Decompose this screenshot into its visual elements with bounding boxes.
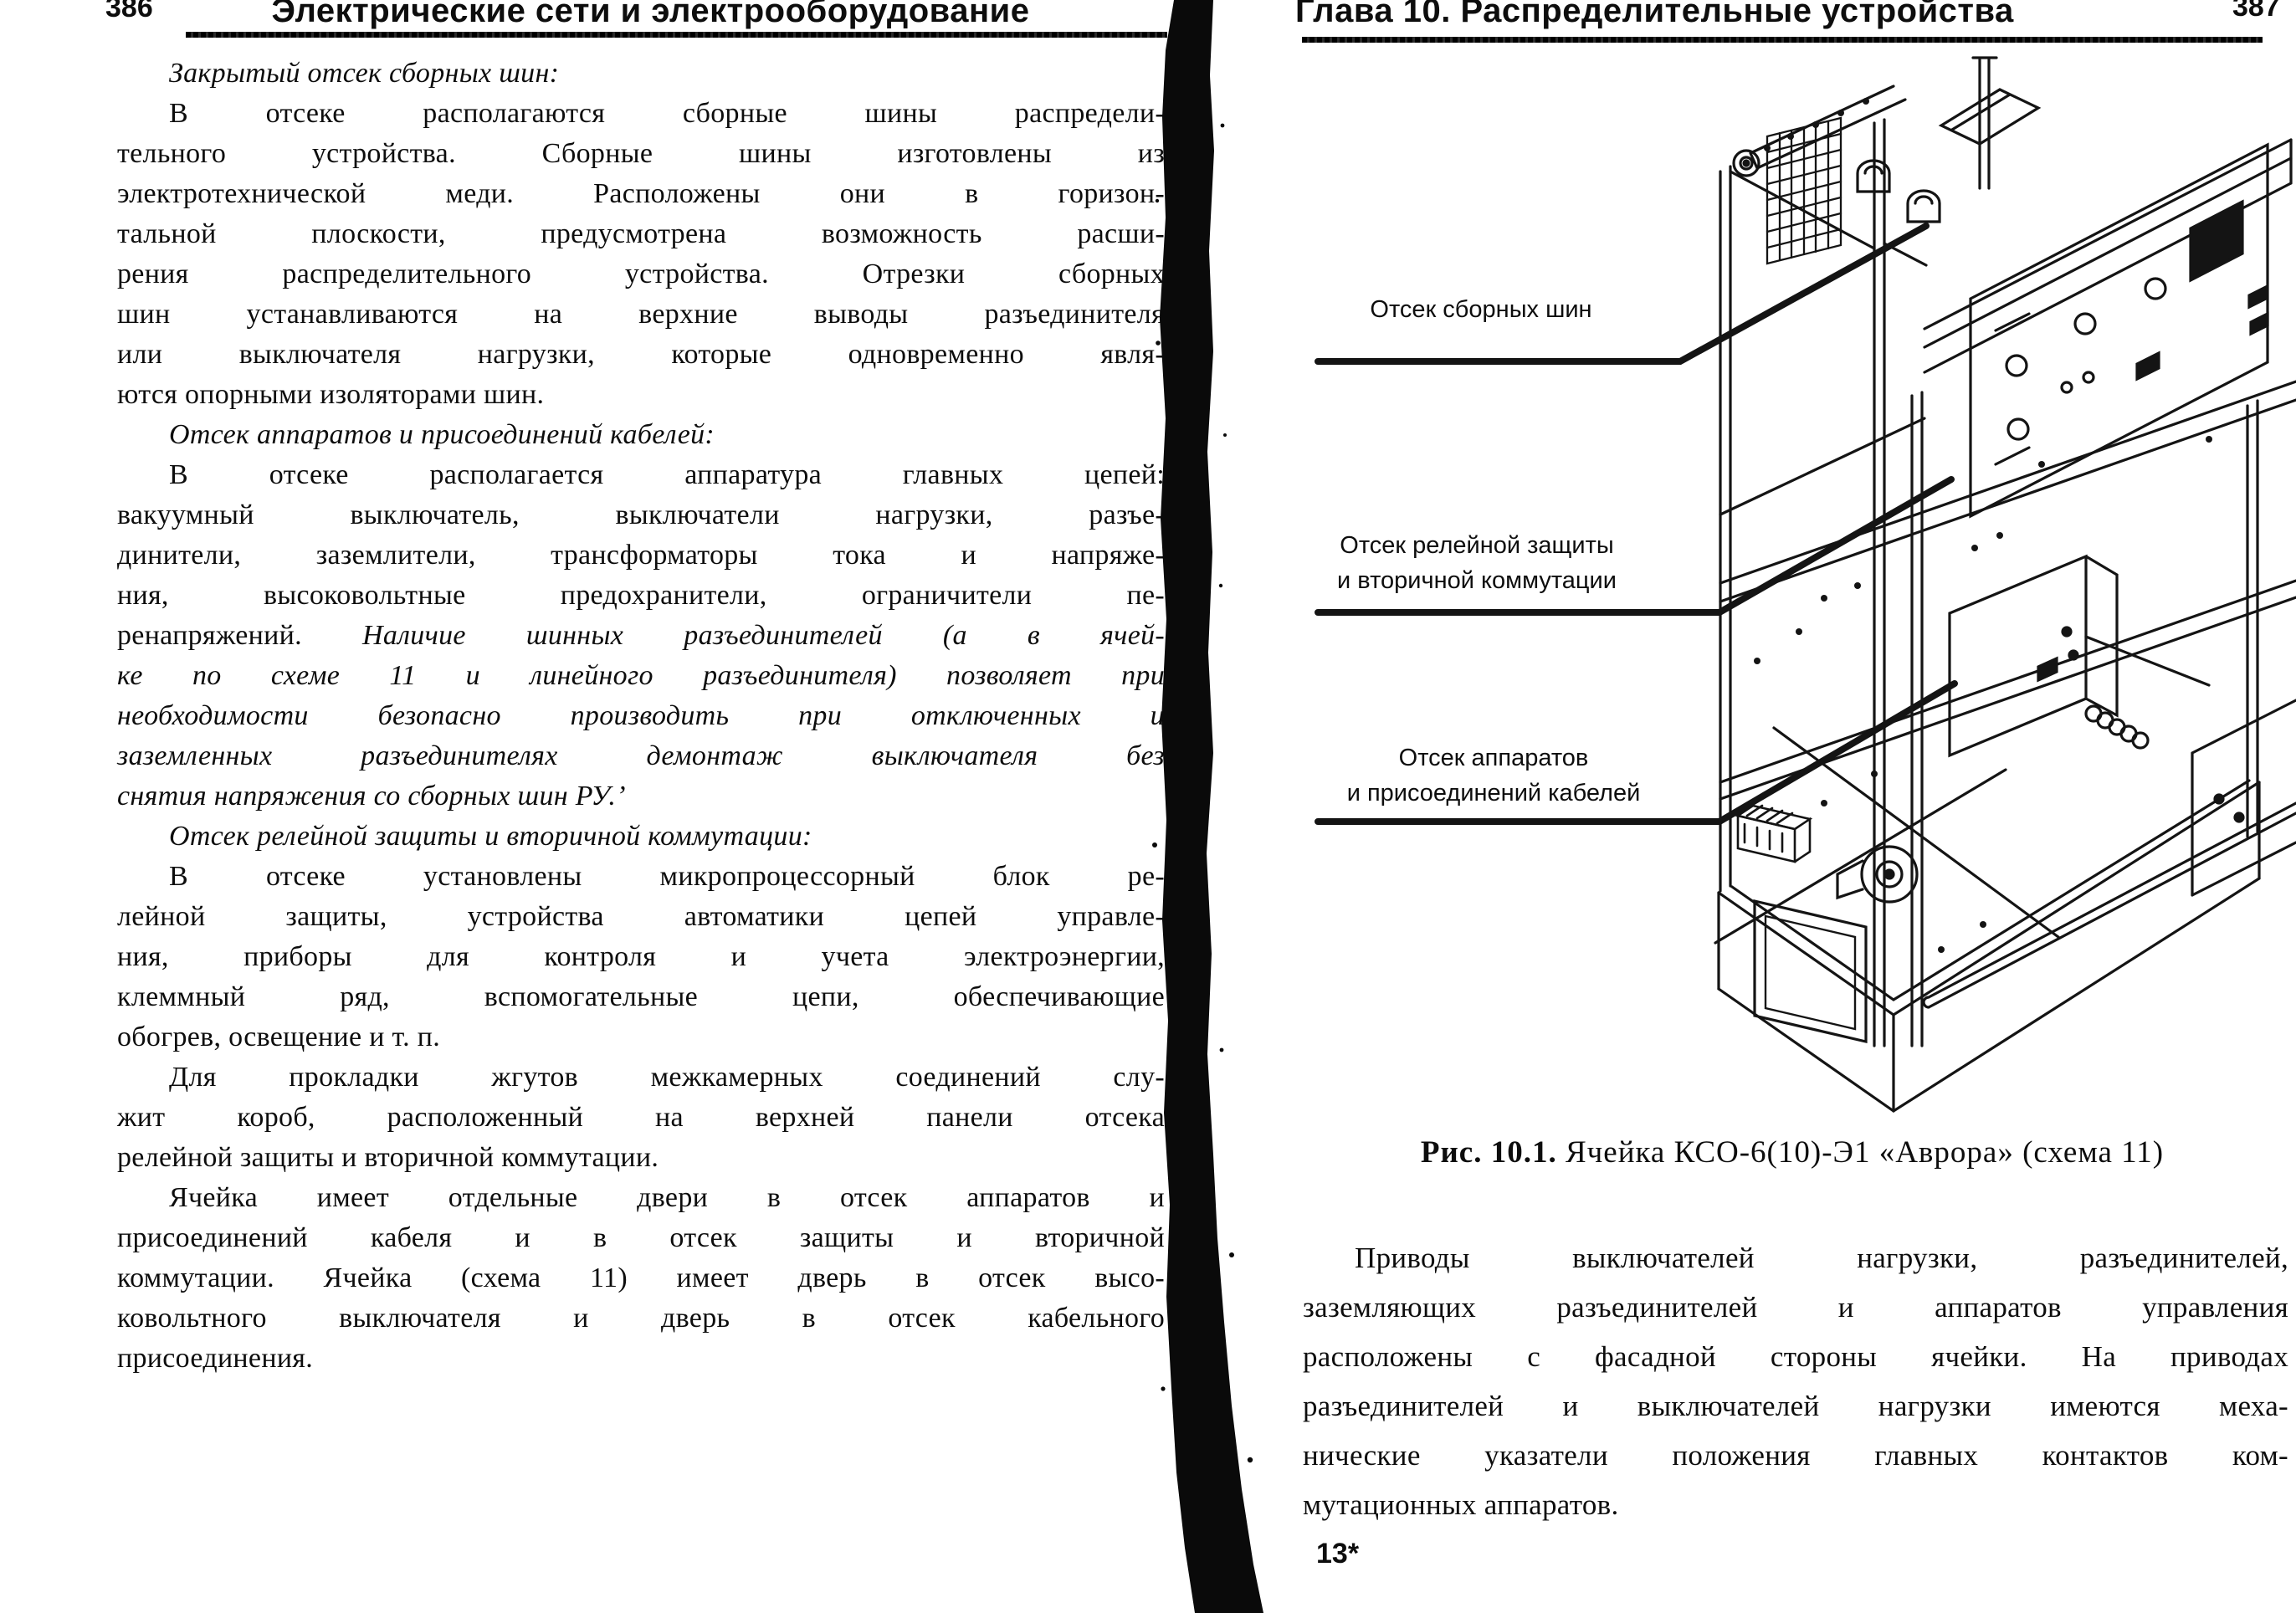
text-line: ренапряжений. Наличие шинных разъедините… xyxy=(117,616,1165,656)
text-line: Для прокладки жгутов межкамерных соедине… xyxy=(117,1057,1165,1098)
left-header-rule xyxy=(186,32,1167,38)
italic-text-segment: необходимости безопасно производить при … xyxy=(117,700,1165,731)
text-segment: Приводы выключателей нагрузки, разъедини… xyxy=(1355,1242,2288,1274)
text-line: Отсек аппаратов и присоединений кабелей: xyxy=(117,415,1165,455)
italic-text-segment: Закрытый отсек сборных шин: xyxy=(169,58,559,89)
busbar-insulators xyxy=(1858,161,1940,222)
text-segment: вакуумный выключатель, выключатели нагру… xyxy=(117,499,1165,530)
label-line: Отсек релейной защиты xyxy=(1305,528,1648,563)
text-segment: релейной защиты и вторичной коммутации. xyxy=(117,1142,659,1173)
text-line: заземленных разъединителях демонтаж выкл… xyxy=(117,736,1165,776)
text-line: ковольтного выключателя и дверь в отсек … xyxy=(117,1298,1165,1339)
italic-text-segment: Отсек аппаратов и присоединений кабелей: xyxy=(169,419,715,450)
left-text-column: Закрытый отсек сборных шин:В отсеке расп… xyxy=(117,54,1165,1379)
text-line: клеммный ряд, вспомогательные цепи, обес… xyxy=(117,977,1165,1017)
figure-10-1-diagram: Отсек сборных шин Отсек релейной защиты … xyxy=(1289,46,2296,1125)
text-segment: лейной защиты, устройства автоматики цеп… xyxy=(117,901,1165,932)
text-segment: присоединения. xyxy=(117,1343,313,1374)
text-segment: клеммный ряд, вспомогательные цепи, обес… xyxy=(117,981,1165,1012)
text-segment: В отсеке установлены микропроцессорный б… xyxy=(169,861,1165,892)
text-segment: ния, приборы для контроля и учета электр… xyxy=(117,941,1165,972)
label-line: и присоединений кабелей xyxy=(1326,776,1661,811)
text-segment: шин устанавливаются на верхние выводы ра… xyxy=(117,299,1165,330)
label-apparatus-compartment: Отсек аппаратов и присоединений кабелей xyxy=(1326,740,1661,811)
relay-instrument-panel xyxy=(1971,145,2268,516)
text-line: Приводы выключателей нагрузки, разъедини… xyxy=(1303,1233,2288,1283)
signature-mark: 13* xyxy=(1316,1538,1359,1570)
figure-caption-text: Ячейка КСО-6(10)-Э1 «Аврора» (схема 11) xyxy=(1557,1135,2164,1170)
text-segment: обогрев, освещение и т. п. xyxy=(117,1022,440,1052)
text-line: динители, заземлители, трансформаторы то… xyxy=(117,535,1165,576)
text-segment: рения распределительного устройства. Отр… xyxy=(117,259,1165,289)
text-segment: динители, заземлители, трансформаторы то… xyxy=(117,540,1165,571)
italic-text-segment: снятия напряжения со сборных шин РУ.’ xyxy=(117,781,626,812)
bolt-dots xyxy=(1754,436,2212,953)
text-line: В отсеке располагаются сборные шины расп… xyxy=(117,94,1165,134)
text-line: ния, приборы для контроля и учета электр… xyxy=(117,937,1165,977)
lower-door-panel xyxy=(1755,901,1866,1042)
right-running-head: Глава 10. Распределительные устройства xyxy=(1295,0,2014,30)
text-segment: разъединителей и выключателей нагрузки и… xyxy=(1303,1390,2288,1422)
right-header-rule xyxy=(1302,37,2263,43)
text-line: ния, высоковольтные предохранители, огра… xyxy=(117,576,1165,616)
text-line: шин устанавливаются на верхние выводы ра… xyxy=(117,294,1165,335)
text-segment: жит короб, расположенный на верхней пане… xyxy=(117,1102,1165,1133)
text-line: разъединителей и выключателей нагрузки и… xyxy=(1303,1381,2288,1431)
text-line: присоединений кабеля и в отсек защиты и … xyxy=(117,1218,1165,1258)
text-line: В отсеке установлены микропроцессорный б… xyxy=(117,857,1165,897)
text-line: В отсеке располагается аппаратура главны… xyxy=(117,455,1165,495)
text-line: снятия напряжения со сборных шин РУ.’ xyxy=(117,776,1165,817)
text-line: заземляющих разъединителей и аппаратов у… xyxy=(1303,1283,2288,1332)
text-segment: коммутации. Ячейка (схема 11) имеет двер… xyxy=(117,1262,1165,1293)
text-line: тальной плоскости, предусмотрена возможн… xyxy=(117,214,1165,254)
text-segment: В отсеке располагается аппаратура главны… xyxy=(169,459,1165,490)
text-line: лейной защиты, устройства автоматики цеп… xyxy=(117,897,1165,937)
text-line: Закрытый отсек сборных шин: xyxy=(117,54,1165,94)
text-line: коммутации. Ячейка (схема 11) имеет двер… xyxy=(117,1258,1165,1298)
text-line: Отсек релейной защиты и вторичной коммут… xyxy=(117,817,1165,857)
text-line: обогрев, освещение и т. п. xyxy=(117,1017,1165,1057)
text-line: расположены с фасадной стороны ячейки. Н… xyxy=(1303,1332,2288,1381)
text-line: нические указатели положения главных кон… xyxy=(1303,1431,2288,1480)
text-segment: ренапряжений. xyxy=(117,620,362,651)
text-line: релейной защиты и вторичной коммутации. xyxy=(117,1138,1165,1178)
text-segment: мутационных аппаратов. xyxy=(1303,1488,1619,1521)
base-plinth xyxy=(1719,781,2259,1111)
text-segment: ются опорными изоляторами шин. xyxy=(117,379,544,410)
text-line: необходимости безопасно производить при … xyxy=(117,696,1165,736)
text-line: рения распределительного устройства. Отр… xyxy=(117,254,1165,294)
text-line: ке по схеме 11 и линейного разъединителя… xyxy=(117,656,1165,696)
book-scan-page: { "colors": { "ink": "#0d0d0d", "paper":… xyxy=(0,0,2296,1613)
bottom-rail xyxy=(1924,803,2296,1007)
text-line: электротехнической меди. Расположены они… xyxy=(117,174,1165,214)
text-line: или выключателя нагрузки, которые одновр… xyxy=(117,335,1165,375)
label-line: Отсек аппаратов xyxy=(1326,740,1661,776)
label-relay-compartment: Отсек релейной защиты и вторичной коммут… xyxy=(1305,528,1648,598)
text-segment: Для прокладки жгутов межкамерных соедине… xyxy=(169,1062,1165,1093)
figure-caption-number: Рис. 10.1. xyxy=(1421,1135,1557,1170)
text-line: присоединения. xyxy=(117,1339,1165,1379)
text-segment: тальной плоскости, предусмотрена возможн… xyxy=(117,218,1165,249)
text-segment: или выключателя нагрузки, которые одновр… xyxy=(117,339,1165,370)
right-lower-panel xyxy=(2192,700,2296,895)
text-line: жит короб, расположенный на верхней пане… xyxy=(117,1098,1165,1138)
text-segment: нические указатели положения главных кон… xyxy=(1303,1439,2288,1472)
fan-scroll xyxy=(1837,847,1917,902)
italic-text-segment: Наличие шинных разъединителей (а в ячей- xyxy=(362,620,1165,651)
text-segment: ковольтного выключателя и дверь в отсек … xyxy=(117,1303,1165,1334)
label-busbar-compartment: Отсек сборных шин xyxy=(1314,292,1648,327)
text-segment: В отсеке располагаются сборные шины расп… xyxy=(169,98,1165,129)
text-segment: Ячейка имеет отдельные двери в отсек апп… xyxy=(169,1182,1165,1213)
text-segment: заземляющих разъединителей и аппаратов у… xyxy=(1303,1291,2288,1324)
italic-text-segment: Отсек релейной защиты и вторичной коммут… xyxy=(169,821,812,852)
text-line: мутационных аппаратов. xyxy=(1303,1480,2288,1529)
left-running-head: Электрические сети и электрооборудование xyxy=(134,0,1167,30)
text-segment: присоединений кабеля и в отсек защиты и … xyxy=(117,1222,1165,1253)
text-segment: тельного устройства. Сборные шины изгото… xyxy=(117,138,1165,169)
text-segment: ния, высоковольтные предохранители, огра… xyxy=(117,580,1165,611)
text-segment: электротехнической меди. Расположены они… xyxy=(117,178,1165,209)
text-segment: расположены с фасадной стороны ячейки. Н… xyxy=(1303,1340,2288,1373)
heater-box xyxy=(1738,806,1810,862)
cabinet-frame xyxy=(1715,58,2296,1046)
text-line: ются опорными изоляторами шин. xyxy=(117,375,1165,415)
text-line: тельного устройства. Сборные шины изгото… xyxy=(117,134,1165,174)
italic-text-segment: ке по схеме 11 и линейного разъединителя… xyxy=(117,660,1165,691)
right-page-number: 387 xyxy=(2232,0,2280,23)
text-line: Ячейка имеет отдельные двери в отсек апп… xyxy=(117,1178,1165,1218)
figure-caption: Рис. 10.1. Ячейка КСО-6(10)-Э1 «Аврора» … xyxy=(1289,1134,2296,1170)
right-text-column: Приводы выключателей нагрузки, разъедини… xyxy=(1303,1233,2288,1529)
text-line: вакуумный выключатель, выключатели нагру… xyxy=(117,495,1165,535)
label-line: и вторичной коммутации xyxy=(1305,563,1648,598)
italic-text-segment: заземленных разъединителях демонтаж выкл… xyxy=(117,740,1165,771)
